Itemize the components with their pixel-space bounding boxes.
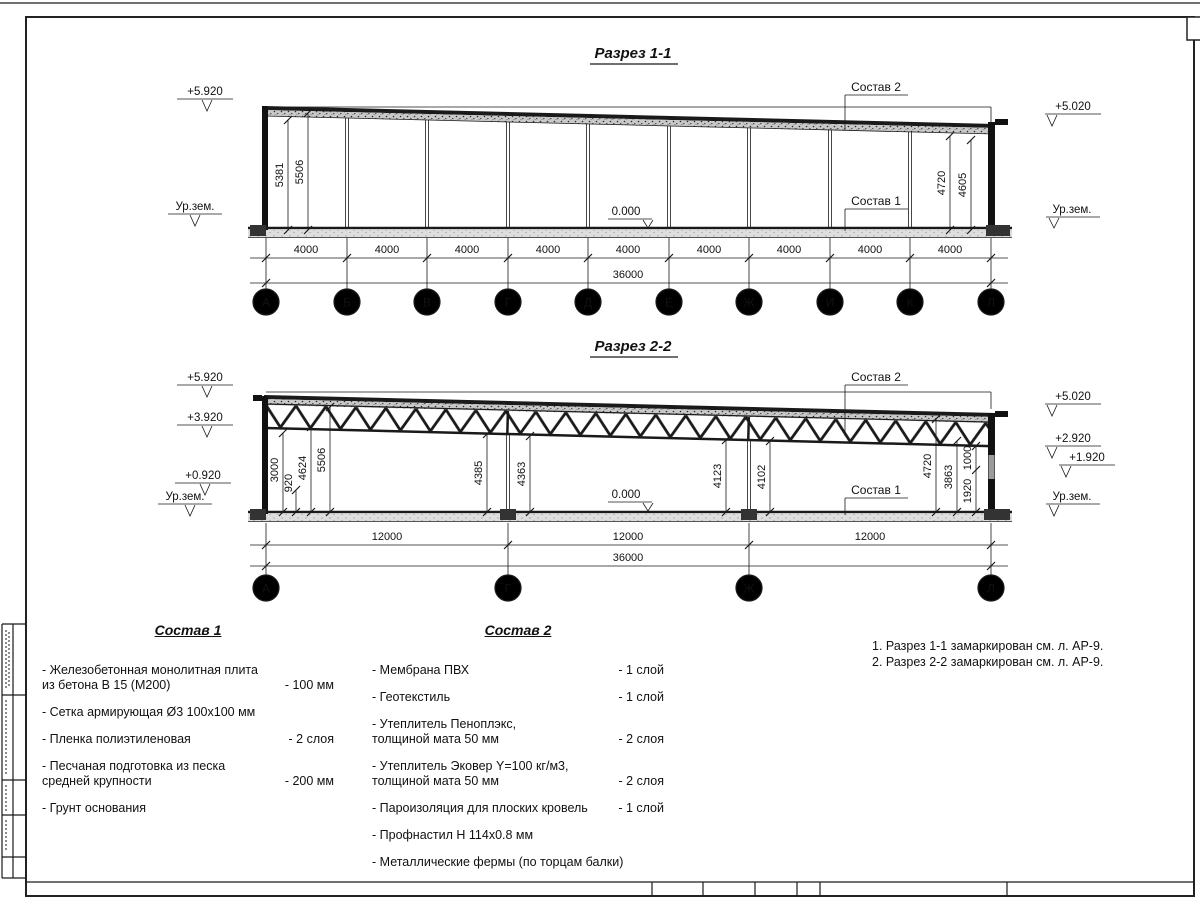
axis-label: И [826,296,835,310]
elevation-value: Ур.зем. [175,201,214,213]
elevation-mark: Ур.зем. [168,201,222,226]
elevation-value: Ур.зем. [165,491,204,503]
dimension-label: 12000 [855,531,886,543]
inner-frame [26,17,1194,896]
s1-floor-composition-label: Состав 1 [851,194,901,208]
s1-floor-slab [248,230,1012,237]
axis-label: Б [343,296,351,310]
sheet-frame [0,3,1200,896]
dimension-label: 3000 [269,458,281,482]
dimension-label: 4000 [536,244,560,256]
dimension-label: 4102 [756,465,768,489]
elevation-mark: +5.920 [177,372,233,397]
dimension-label: 5506 [294,160,306,184]
s1-left-wall [262,106,268,232]
s1-right-footing [986,225,1010,236]
dimension-label: 4000 [294,244,318,256]
dimension-label: 4000 [938,244,962,256]
s2-footing [250,509,266,520]
s2-floor-composition-label: Состав 1 [851,483,901,497]
s1-right-eave-tab [995,119,1008,125]
elevation-mark: +5.020 [1045,101,1101,126]
title-block-top [26,882,1194,895]
dimension-label: 4720 [922,454,934,478]
section-2-title: Разрез 2-2 [594,338,672,355]
axis-label: Е [665,296,673,310]
title-block-dividers [652,882,1007,895]
axis-label: В [423,296,431,310]
elevation-value: +5.020 [1055,101,1091,113]
elevation-mark: Ур.зем. [1046,204,1100,228]
drawing-sheet: Разрез 1-1 Состав 2 Состав 1 [0,0,1200,900]
dimension-label: 12000 [613,531,644,543]
axis-label: Ж [743,582,754,596]
s2-right-wall-insert [989,455,995,479]
s2-left-eave-tab [253,395,262,401]
axis-label: Л [987,582,995,596]
dimension-label: 4000 [777,244,801,256]
axis-label: Л [987,296,995,310]
s1-horizontal-dimensions: 4000 4000 4000 4000 4000 4000 4000 4000 … [250,238,1008,289]
elevation-value: 0.000 [612,489,641,501]
dimension-label: 1920 [962,479,974,503]
elevation-value: Ур.зем. [1052,204,1091,216]
elevation-value: +3.920 [187,412,223,424]
s1-roof-composition-label: Состав 2 [851,80,901,94]
s2-roof-composition-label: Состав 2 [851,370,901,384]
section-2-2: Разрез 2-2 Состав [158,338,1115,601]
section-1-1: Разрез 1-1 Состав 2 Состав 1 [168,45,1101,315]
attestation-strip [2,624,26,878]
elevation-mark: +5.920 [177,86,233,111]
dimension-label: 3863 [943,465,955,489]
elevation-value: +1.920 [1069,452,1105,464]
dimension-label: 4385 [473,461,485,485]
dimension-label: 4605 [957,173,969,197]
s1-right-wall [988,122,995,232]
corner-stamp-box [1187,17,1200,40]
s2-horizontal-dimensions: 12000 12000 12000 36000 [250,523,1008,575]
attestation-microtext [6,630,9,852]
axis-label: А [262,582,270,596]
elevation-value: +2.920 [1055,433,1091,445]
s2-footing [984,509,1010,520]
dimension-label: 4000 [858,244,882,256]
dimension-label: 4000 [697,244,721,256]
dimension-label: 4363 [516,462,528,486]
zero-level-mark: 0.000 [608,206,653,228]
axis-label: К [907,296,914,310]
elevation-mark: Ур.зем. [1046,491,1100,516]
dimension-label: 36000 [613,269,644,281]
drawing-canvas: Разрез 1-1 Состав 2 Состав 1 [0,0,1200,900]
s2-building [248,395,1012,522]
elevation-value: +0.920 [185,470,221,482]
dimension-label: 12000 [372,531,403,543]
s2-floor-slab [248,514,1012,521]
elevation-value: 0.000 [612,206,641,218]
axis-label: Ж [743,296,754,310]
dimension-label: 4624 [297,456,309,480]
section-1-title: Разрез 1-1 [594,45,671,62]
dimension-label: 1000 [962,446,974,470]
dimension-label: 920 [283,474,295,492]
elevation-value: +5.020 [1055,391,1091,403]
dimension-label: 4000 [455,244,479,256]
elevation-value: Ур.зем. [1052,491,1091,503]
s1-axis-bubbles: А Б В Г Д Е Ж И К Л [253,289,1004,315]
elevation-mark: +3.920 [177,412,233,437]
elevation-value: +5.920 [187,86,223,98]
axis-label: Г [505,296,512,310]
s2-left-wall [262,396,268,515]
s2-axis-bubbles: А Г Ж Л [253,575,1004,601]
axis-label: А [262,296,270,310]
axis-label: Д [584,296,592,310]
dimension-label: 4123 [712,464,724,488]
elevation-value: +5.920 [187,372,223,384]
s1-left-footing [250,225,266,236]
s2-right-eave-tab [995,411,1008,417]
axis-label: Г [505,582,512,596]
dimension-label: 4000 [616,244,640,256]
elevation-mark: +1.920 [1059,452,1115,477]
dimension-label: 5506 [316,448,328,472]
elevation-mark: +5.020 [1045,391,1101,416]
zero-level-mark: 0.000 [608,489,653,511]
dimension-label: 36000 [613,552,644,564]
dimension-label: 5381 [274,163,286,187]
elevation-mark: Ур.зем. [158,491,212,516]
s2-footing [500,509,516,520]
dimension-label: 4720 [936,171,948,195]
dimension-label: 4000 [375,244,399,256]
s2-footing [741,509,757,520]
